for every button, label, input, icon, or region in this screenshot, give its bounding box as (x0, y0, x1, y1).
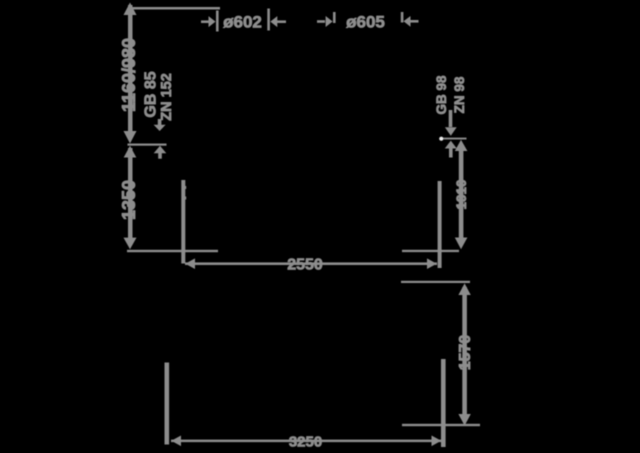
svg-text:1160/980: 1160/980 (119, 38, 139, 112)
svg-text:1910: 1910 (454, 179, 469, 209)
svg-text:1350: 1350 (119, 180, 139, 220)
svg-text:1570: 1570 (457, 335, 474, 371)
svg-text:2550: 2550 (287, 257, 323, 274)
svg-text:GB 85: GB 85 (143, 71, 160, 117)
svg-text:ø602: ø602 (223, 13, 262, 32)
svg-text:3250: 3250 (289, 433, 322, 450)
svg-text:ø605: ø605 (346, 13, 385, 32)
svg-text:GB 98: GB 98 (434, 75, 449, 115)
svg-text:ZN 152: ZN 152 (159, 73, 175, 121)
svg-text:ZN 98: ZN 98 (452, 76, 467, 113)
